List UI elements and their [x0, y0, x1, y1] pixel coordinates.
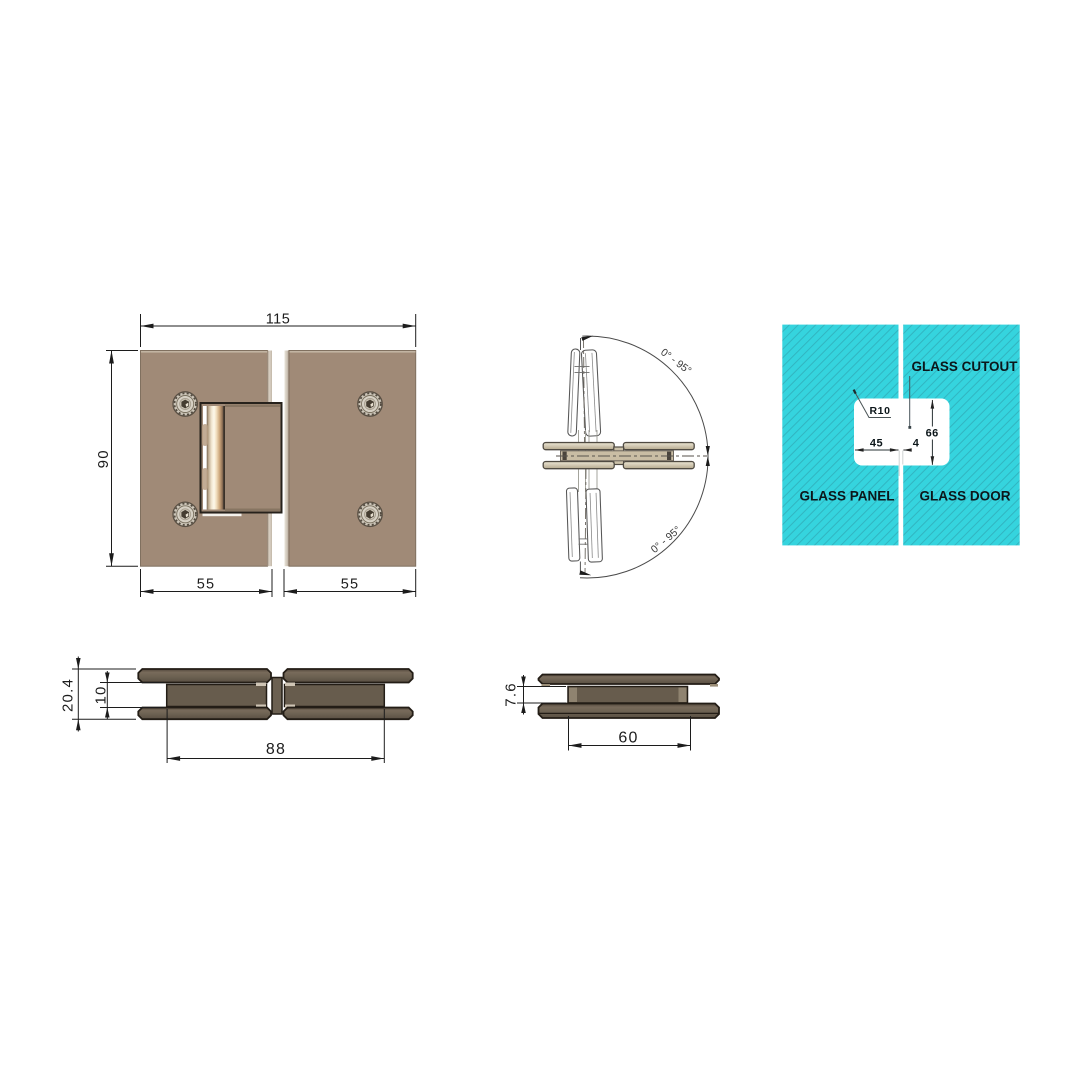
svg-text:55: 55: [197, 577, 216, 593]
svg-text:60: 60: [618, 730, 638, 747]
svg-text:0° - 95°: 0° - 95°: [658, 346, 693, 377]
svg-text:GLASS CUTOUT: GLASS CUTOUT: [912, 358, 1018, 374]
svg-text:GLASS DOOR: GLASS DOOR: [920, 488, 1011, 504]
svg-text:45: 45: [870, 438, 883, 450]
svg-text:115: 115: [266, 312, 291, 328]
svg-text:55: 55: [341, 577, 360, 593]
svg-text:66: 66: [926, 428, 939, 440]
svg-text:20.4: 20.4: [60, 678, 77, 712]
svg-text:10: 10: [93, 685, 110, 704]
svg-text:88: 88: [266, 741, 286, 758]
svg-text:4: 4: [913, 438, 920, 450]
svg-text:0° - 95°: 0° - 95°: [649, 524, 684, 556]
svg-text:90: 90: [95, 449, 112, 468]
svg-text:GLASS PANEL: GLASS PANEL: [800, 488, 895, 504]
svg-text:R10: R10: [870, 405, 891, 417]
svg-text:7.6: 7.6: [503, 682, 520, 706]
